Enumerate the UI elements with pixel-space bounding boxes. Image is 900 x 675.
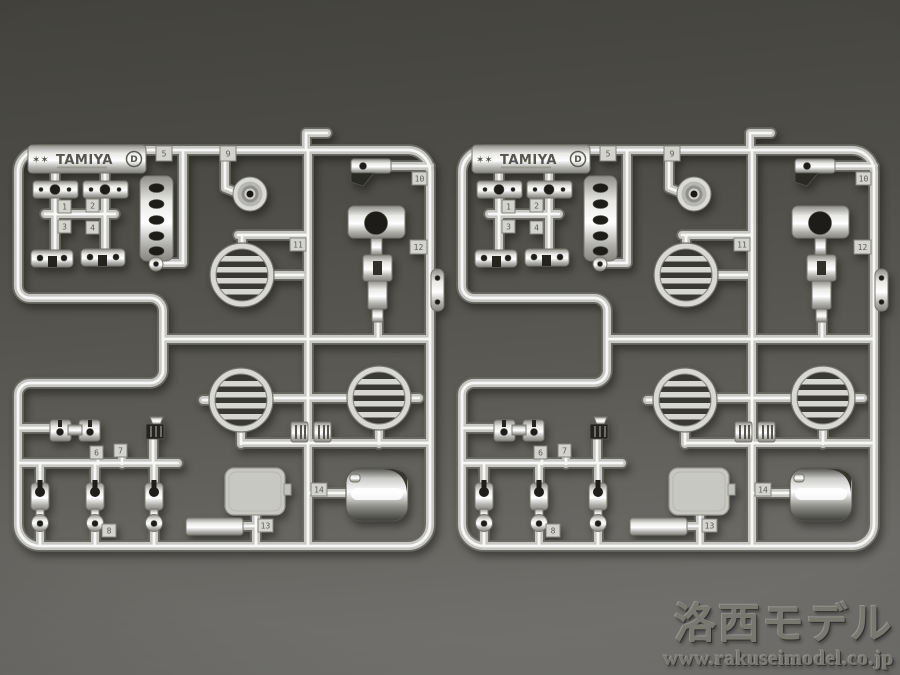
photo-background: ✶✶ TAMIYA D bbox=[0, 0, 900, 675]
chrome-sprue-left bbox=[10, 126, 450, 566]
watermark-website: www.rakuseimodel.co.jp bbox=[663, 646, 894, 671]
watermark-shop-name: 洛西モデル bbox=[663, 603, 894, 646]
watermark: 洛西モデル www.rakuseimodel.co.jp bbox=[663, 603, 894, 671]
chrome-sprue-right bbox=[454, 126, 894, 566]
